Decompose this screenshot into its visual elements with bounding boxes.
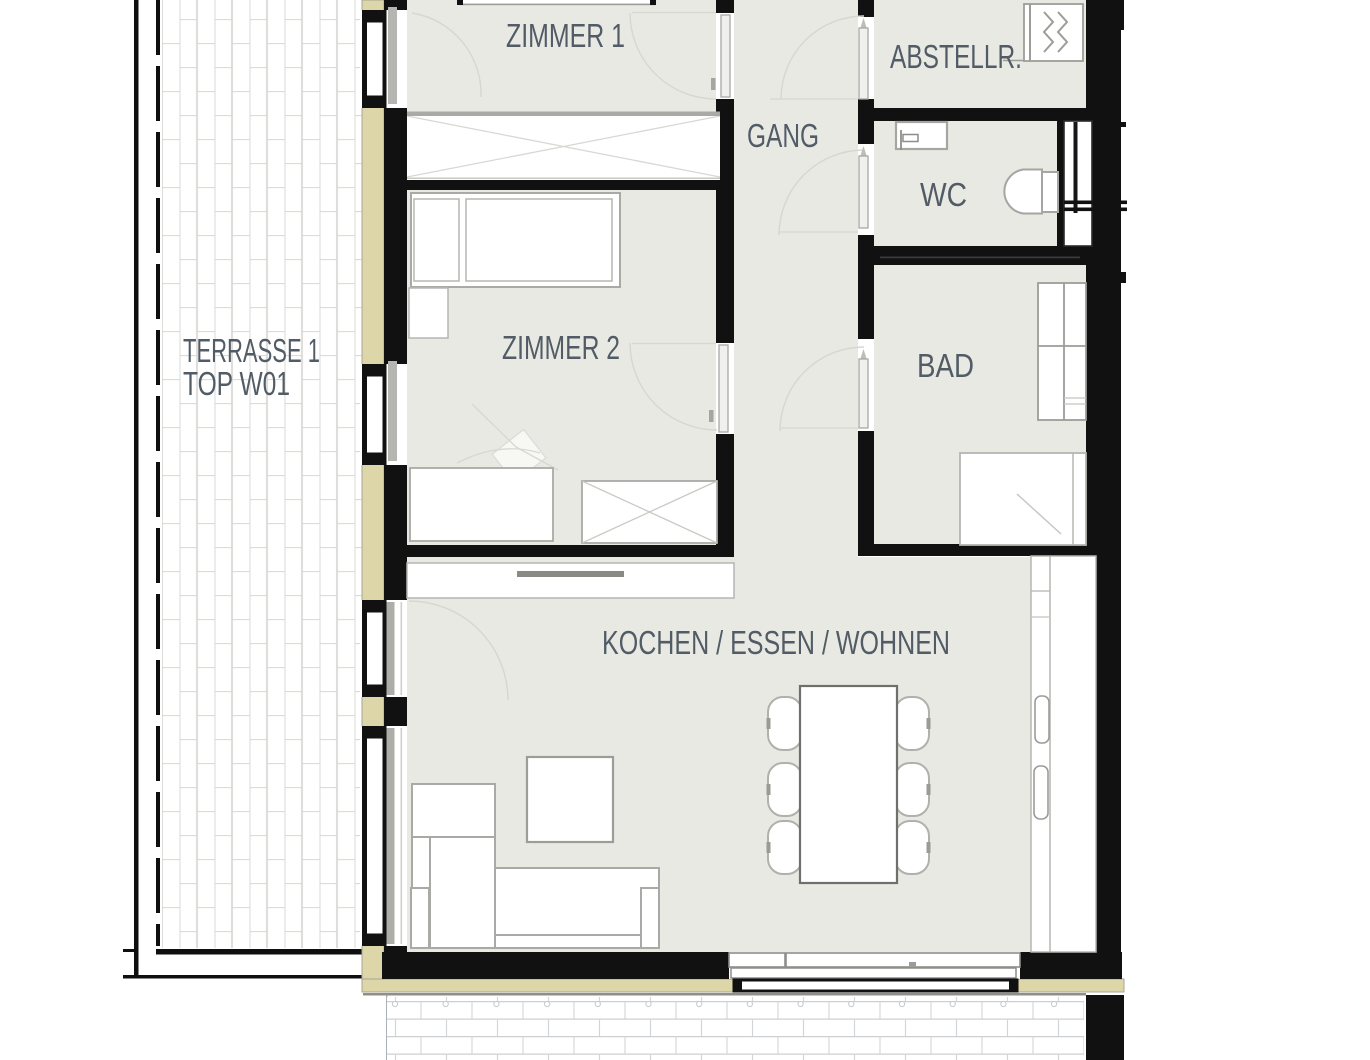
- svg-text:KOCHEN / ESSEN / WOHNEN: KOCHEN / ESSEN / WOHNEN: [602, 624, 950, 661]
- svg-text:GANG: GANG: [747, 117, 819, 154]
- svg-text:BAD: BAD: [917, 347, 974, 384]
- svg-text:ABSTELLR.: ABSTELLR.: [890, 38, 1022, 75]
- svg-text:TERRASSE 1: TERRASSE 1: [183, 332, 320, 369]
- svg-text:ZIMMER 2: ZIMMER 2: [502, 329, 620, 366]
- svg-text:ZIMMER 1: ZIMMER 1: [506, 17, 625, 54]
- svg-text:TOP W01: TOP W01: [183, 365, 290, 402]
- svg-text:WC: WC: [920, 176, 967, 213]
